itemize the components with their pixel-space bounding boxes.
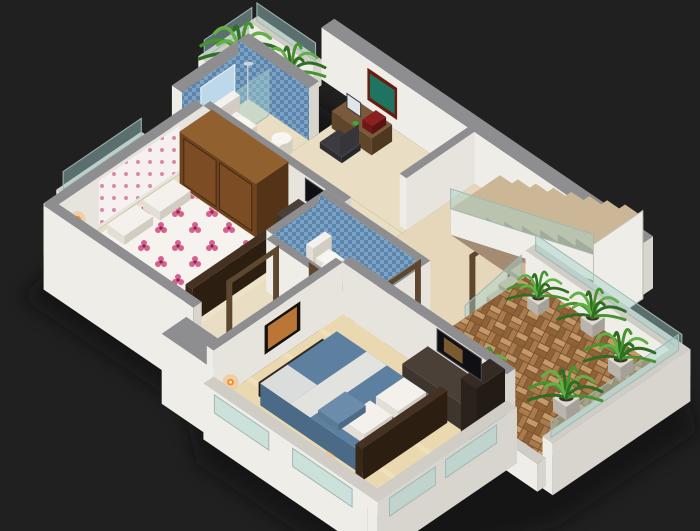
floorplan-3d-scene bbox=[0, 0, 700, 531]
shower-pole bbox=[247, 63, 248, 111]
desk-bottle bbox=[353, 121, 359, 125]
floorplan-render-stage bbox=[0, 0, 700, 531]
bathroom1-basin-bowl bbox=[272, 132, 292, 144]
shower-head bbox=[243, 62, 253, 66]
